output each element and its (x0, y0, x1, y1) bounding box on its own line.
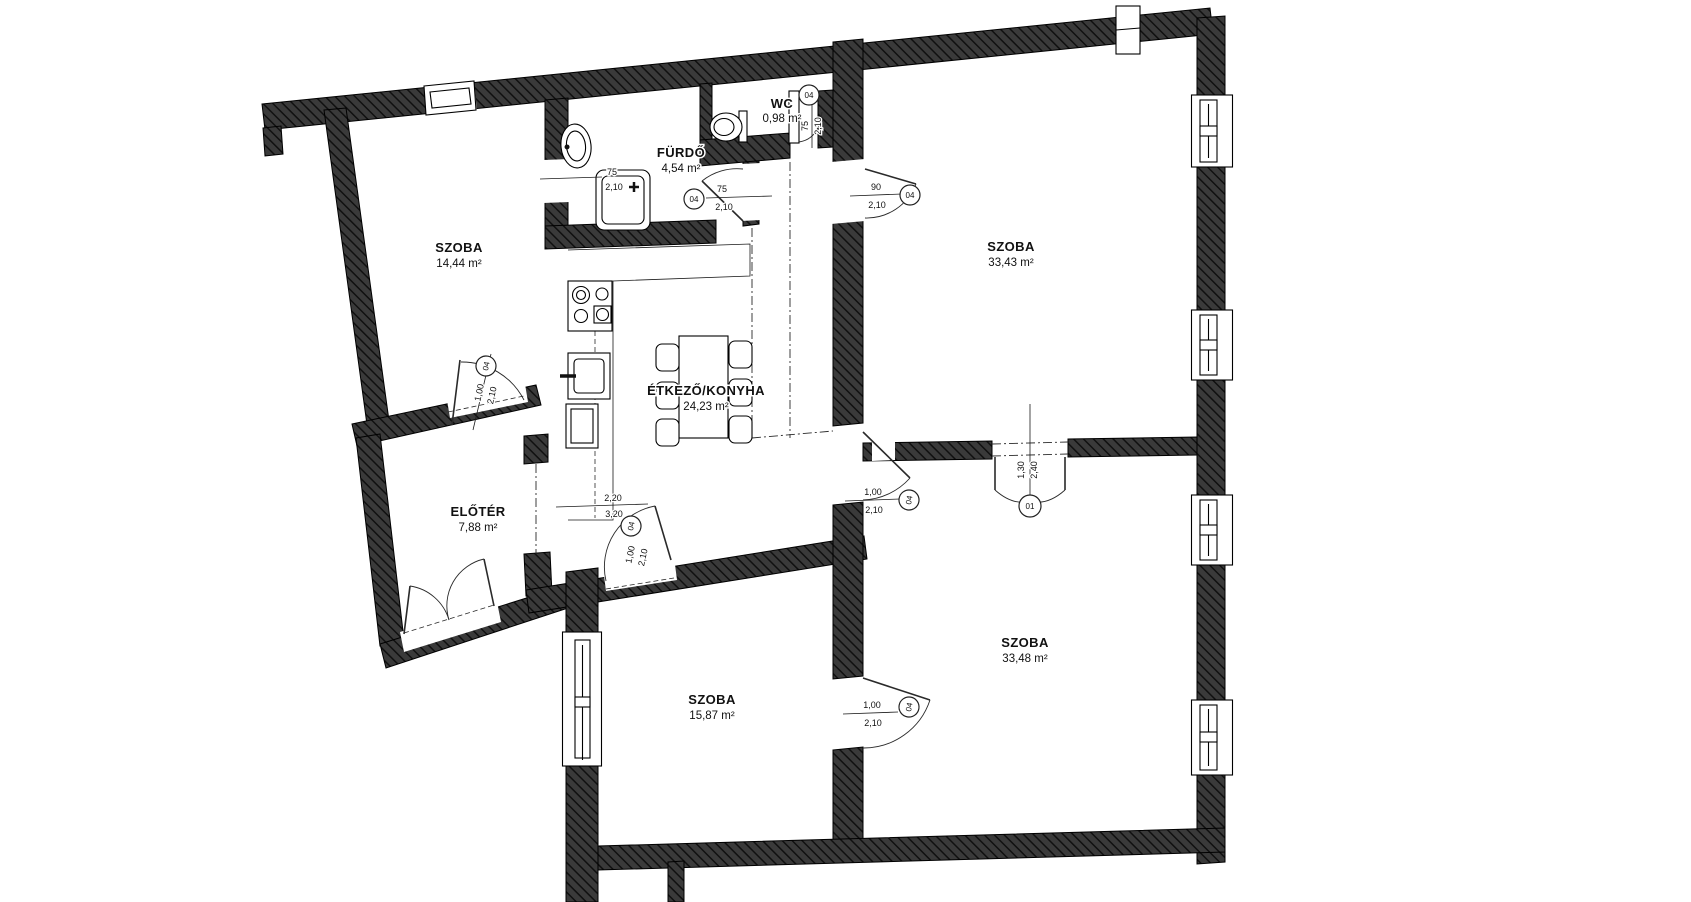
wall-bottom-exterior (598, 828, 1225, 870)
fixtures (559, 111, 752, 520)
shaft-top-right (1116, 6, 1140, 54)
dim-opening-eloter: 2,20 3,20 (556, 493, 648, 519)
room-name: FÜRDŐ (657, 145, 705, 160)
room-name: SZOBA (435, 240, 483, 255)
room-name: WC (771, 96, 794, 111)
door-tag: 01 (1019, 495, 1041, 517)
room-area: 15,87 m² (689, 710, 735, 722)
room-label-szoba-2: SZOBA 33,43 m² (987, 239, 1035, 269)
dim-height: 2,10 (813, 117, 823, 135)
dim-door-konyha-szoba3: 1,00 2,10 04 (619, 514, 649, 567)
room-label-szoba-1: SZOBA 14,44 m² (435, 240, 483, 270)
dim-width: 1,00 (863, 700, 881, 710)
wall-openings (400, 80, 1228, 775)
door-tag: 04 (474, 354, 498, 378)
room-area: 7,88 m² (459, 522, 498, 534)
door-tag: 04 (684, 189, 704, 209)
dim-width: 75 (800, 121, 810, 131)
wall-left-szoba1 (324, 108, 390, 432)
dim-width: 75 (717, 184, 727, 194)
wall-center-vertical-mid (833, 502, 863, 679)
dim-height: 2,10 (868, 200, 886, 210)
dim-width: 1,30 (1016, 461, 1026, 479)
room-area: 33,48 m² (1002, 653, 1048, 665)
svg-text:04: 04 (690, 195, 699, 204)
dim-door-01: 1,30 2,40 01 (1016, 461, 1041, 517)
room-name: SZOBA (688, 692, 736, 707)
kitchen-sink (560, 353, 610, 399)
room-name: ÉTKEZŐ/KONYHA (647, 383, 765, 398)
room-area: 0,98 m² (763, 113, 802, 125)
room-name: ELŐTÉR (450, 504, 505, 519)
room-name: SZOBA (1001, 635, 1049, 650)
door-tag: 04 (897, 488, 920, 511)
wall-top (262, 8, 1213, 130)
wall-center-vertical-lower (833, 747, 863, 843)
toilet (710, 111, 747, 142)
room-area: 24,23 m² (683, 401, 729, 413)
room-area: 14,44 m² (436, 258, 482, 270)
floorplan-page: 1,00 2,10 04 75 2,10 75 2,10 04 (0, 0, 1691, 902)
wall-bottom-stub (668, 861, 684, 902)
door-tag: 04 (897, 695, 920, 718)
opening-door-szoba2 (831, 159, 865, 224)
door-furdo (702, 169, 743, 221)
svg-text:01: 01 (1026, 502, 1035, 511)
room-area: 4,54 m² (662, 163, 701, 175)
room-label-furdo: FÜRDŐ 4,54 m² (657, 145, 705, 175)
dim-door-szoba3-szoba4: 1,00 2,10 04 (843, 695, 921, 728)
wall-szoba2-szoba4-right (1068, 437, 1197, 457)
wall-stub-eloter-a (524, 434, 548, 464)
shower-tray (596, 170, 650, 230)
opening-furdo-niche (543, 159, 570, 203)
dim-width: 75 (607, 167, 617, 177)
dim-height: 2,10 (715, 202, 733, 212)
dim-width: 1,00 (864, 487, 882, 497)
wall-center-vertical-upper (833, 39, 863, 426)
svg-text:04: 04 (805, 91, 814, 100)
stove (568, 281, 612, 331)
door-tag: 04 (799, 85, 819, 105)
room-label-szoba-3: SZOBA 15,87 m² (688, 692, 736, 722)
dim-height: 2,10 (605, 182, 623, 192)
dim-height: 3,20 (605, 509, 623, 519)
guide-corridor-c (752, 431, 833, 438)
dim-width: 2,20 (604, 493, 622, 503)
room-area: 33,43 m² (988, 257, 1034, 269)
wall-left-eloter (356, 434, 404, 646)
dim-width: 1,00 (623, 545, 636, 564)
room-label-eloter: ELŐTÉR 7,88 m² (450, 504, 505, 534)
dim-height: 2,10 (865, 505, 883, 515)
opening-door-furdo (741, 163, 761, 221)
dim-width: 90 (871, 182, 881, 192)
window-top (424, 81, 476, 115)
door-double-01 (992, 404, 1068, 502)
svg-text:04: 04 (906, 191, 915, 200)
wall-top-left-stub (263, 126, 283, 156)
dim-height: 2,10 (864, 718, 882, 728)
room-name: SZOBA (987, 239, 1035, 254)
floorplan-drawing: 1,00 2,10 04 75 2,10 75 2,10 04 (0, 0, 1691, 902)
room-label-szoba-4: SZOBA 33,48 m² (1001, 635, 1049, 665)
dim-height: 2,40 (1029, 461, 1039, 479)
door-tag: 04 (900, 185, 920, 205)
kitchen-appliance (566, 404, 598, 448)
